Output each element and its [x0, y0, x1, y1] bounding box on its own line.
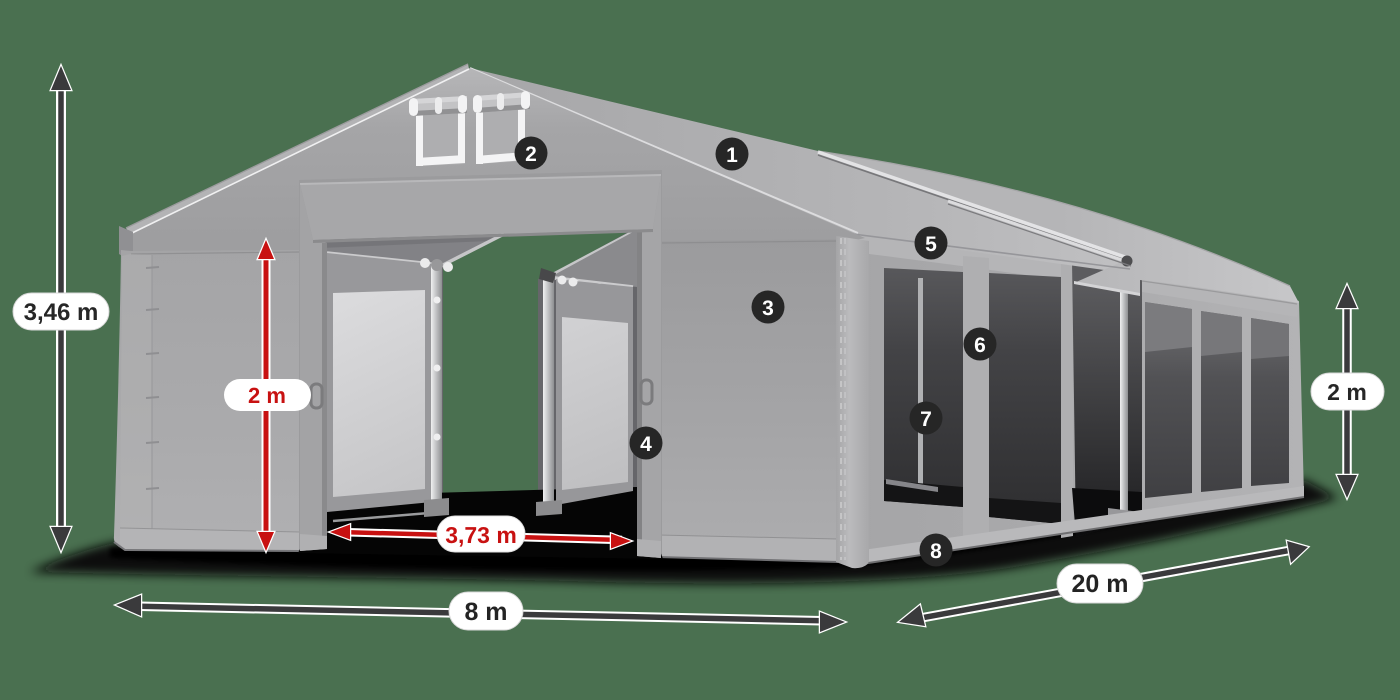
svg-text:2 m: 2 m [1327, 379, 1367, 405]
svg-text:2: 2 [525, 143, 537, 166]
svg-text:8 m: 8 m [464, 598, 507, 626]
svg-text:6: 6 [974, 334, 986, 357]
svg-text:4: 4 [640, 433, 652, 456]
svg-text:3,46 m: 3,46 m [24, 299, 99, 326]
svg-text:1: 1 [726, 144, 738, 167]
svg-text:5: 5 [925, 233, 937, 256]
svg-text:7: 7 [920, 408, 932, 431]
svg-text:3,73 m: 3,73 m [445, 522, 517, 548]
svg-text:8: 8 [930, 540, 942, 563]
svg-text:20 m: 20 m [1072, 570, 1129, 598]
svg-text:2 m: 2 m [248, 383, 286, 408]
svg-text:3: 3 [762, 297, 774, 320]
